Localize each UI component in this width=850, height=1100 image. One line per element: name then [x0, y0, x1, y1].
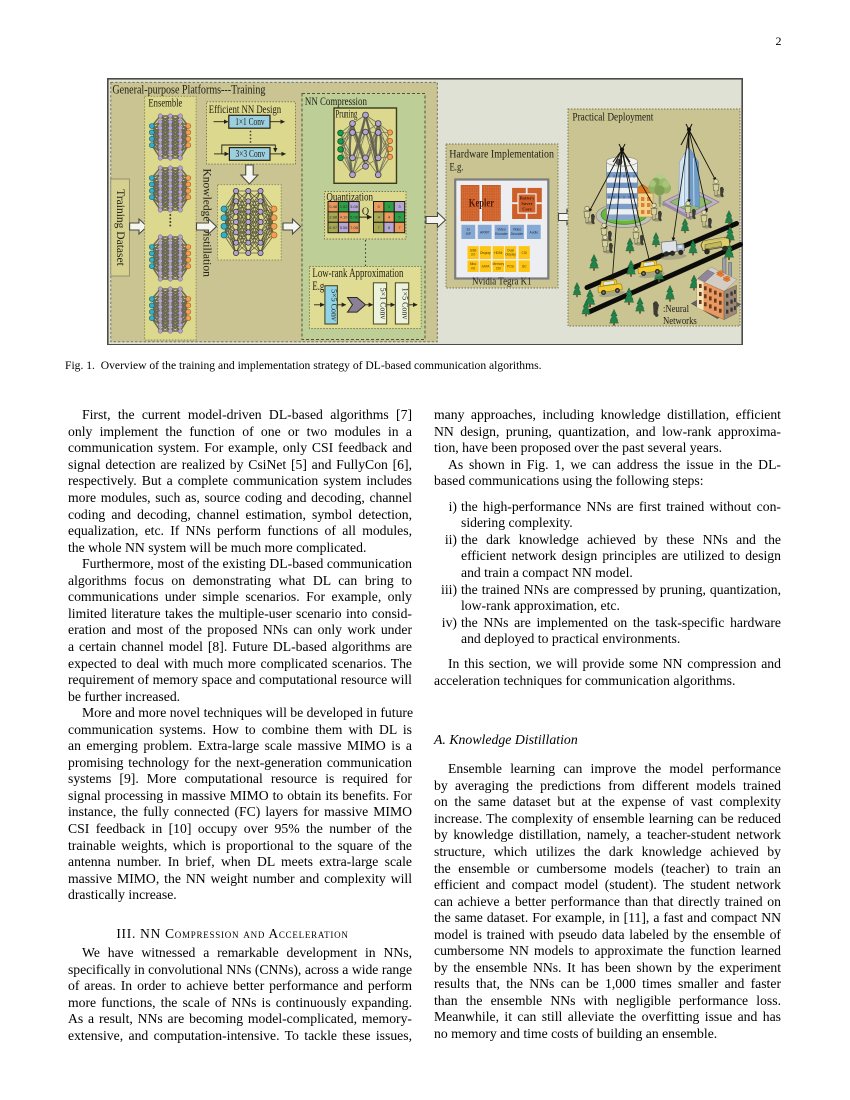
svg-text:Distillation: Distillation [201, 225, 213, 277]
svg-text:I/O: I/O [471, 266, 476, 270]
svg-text:ISP: ISP [466, 232, 472, 236]
svg-text:7.08: 7.08 [350, 225, 359, 230]
svg-text:1.52: 1.52 [340, 204, 349, 209]
svg-text:Video: Video [497, 228, 506, 232]
svg-text:General-purpose Platforms---Tr: General-purpose Platforms---Training [112, 82, 266, 96]
svg-text:3×3 Conv: 3×3 Conv [236, 149, 266, 160]
svg-text:4.19: 4.19 [340, 215, 349, 220]
svg-text:Pruning: Pruning [335, 109, 357, 121]
svg-text:0.48: 0.48 [329, 204, 338, 209]
svg-text:Battery: Battery [520, 196, 535, 201]
svg-text:Efficient NN Design: Efficient NN Design [209, 102, 281, 116]
svg-text:Audio: Audio [529, 230, 538, 234]
svg-text:Low-rank Approximation: Low-rank Approximation [312, 266, 404, 280]
svg-text:Networks: Networks [663, 315, 697, 327]
svg-text:Practical Deployment: Practical Deployment [572, 110, 654, 124]
svg-text:1×1 Conv: 1×1 Conv [235, 117, 265, 128]
svg-text:Saver: Saver [521, 201, 532, 206]
svg-text:5×5 Conv: 5×5 Conv [330, 289, 339, 321]
svg-text:2x: 2x [467, 228, 471, 232]
svg-text:ARM7: ARM7 [480, 230, 490, 234]
svg-text::Neural: :Neural [663, 303, 689, 315]
svg-text:Q: Q [362, 206, 370, 217]
svg-text:E.g.: E.g. [450, 160, 464, 174]
svg-text:Hardware Implementation: Hardware Implementation [449, 147, 554, 161]
svg-text:5×1 Conv: 5×1 Conv [378, 288, 387, 320]
svg-text:PCIe: PCIe [507, 265, 514, 269]
svg-text:3.88: 3.88 [329, 215, 338, 220]
svg-text:3.0: 3.0 [471, 253, 476, 257]
svg-text:Kepler: Kepler [469, 197, 494, 209]
svg-text:Nvidia Tegra K1: Nvidia Tegra K1 [472, 276, 532, 288]
svg-text:SATA: SATA [481, 265, 490, 269]
svg-text:Decoder: Decoder [511, 232, 525, 236]
svg-text:E.g.: E.g. [312, 279, 326, 293]
svg-text:5.08: 5.08 [350, 215, 359, 220]
svg-text:Encoder: Encoder [495, 232, 508, 236]
svg-text:Ctrl: Ctrl [496, 266, 501, 270]
svg-text:HDMI: HDMI [494, 251, 502, 255]
svg-text:NN Compression: NN Compression [305, 94, 367, 108]
svg-text:3.08: 3.08 [350, 204, 359, 209]
svg-text:Ensemble: Ensemble [148, 96, 182, 110]
svg-text:Video: Video [513, 228, 522, 232]
svg-text:Training Dataset: Training Dataset [114, 189, 126, 266]
svg-text:Display: Display [505, 253, 516, 257]
svg-text:5.58: 5.58 [340, 225, 349, 230]
svg-text:6.97: 6.97 [329, 225, 338, 230]
svg-text:Knowledge: Knowledge [201, 168, 213, 221]
svg-text:Core: Core [522, 207, 532, 212]
svg-text:CSI: CSI [522, 251, 527, 255]
svg-text:I2C: I2C [522, 265, 528, 269]
svg-text:1×5 Conv: 1×5 Conv [400, 288, 409, 320]
svg-text:Display: Display [480, 251, 491, 255]
